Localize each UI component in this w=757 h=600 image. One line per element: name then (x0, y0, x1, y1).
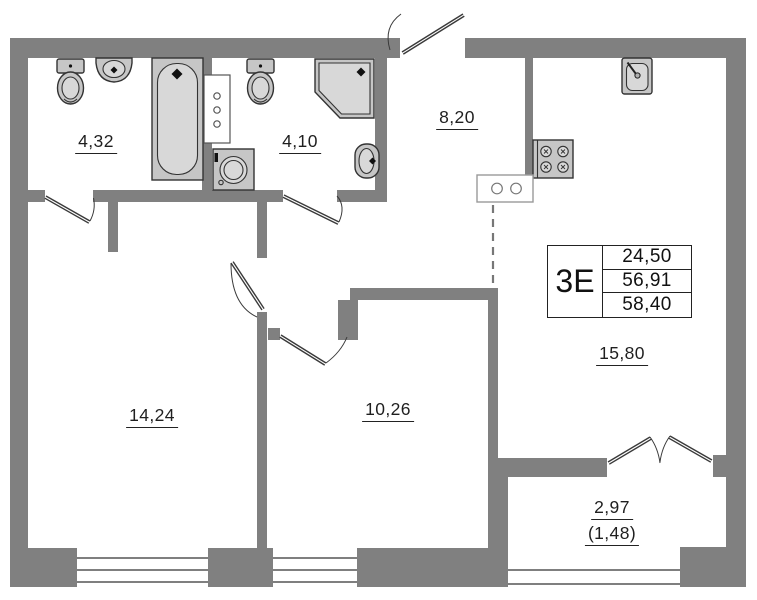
window-room-2 (273, 548, 357, 587)
toilet-icon (247, 59, 274, 104)
bathtub-icon (152, 58, 203, 180)
wall-sink-icon (96, 58, 132, 82)
room-1-door (231, 262, 264, 317)
kitchen-sink-icon (622, 58, 652, 94)
area-label-room-2: 10,26 (362, 399, 414, 422)
area-label-bathroom-1: 4,32 (75, 131, 117, 154)
bathroom-1-door (45, 196, 94, 223)
window-room-1 (77, 548, 208, 587)
total-area-value: 56,91 (603, 270, 691, 294)
area-label-hallway: 8,20 (436, 107, 478, 130)
ventilation-shaft (204, 75, 230, 143)
kitchen-counter (477, 175, 533, 202)
area-label-kitchen-living: 15,80 (596, 343, 648, 366)
toilet-icon (57, 59, 84, 104)
floor-plan: 4,32 4,10 8,20 14,24 10,26 15,80 2,97 (1… (0, 0, 757, 600)
bathroom-2-door (283, 195, 342, 224)
area-label-balcony: 2,97 (591, 497, 633, 520)
apartment-info-table: 3Е 24,50 56,91 58,40 (547, 245, 692, 318)
stove-icon (533, 140, 573, 178)
area-label-balcony-coefficient: (1,48) (585, 523, 639, 546)
living-area-value: 24,50 (603, 246, 691, 270)
total-area-with-balcony-value: 58,40 (603, 293, 691, 317)
area-label-bathroom-2: 4,10 (279, 131, 321, 154)
apartment-type: 3Е (548, 246, 603, 317)
room-2-door (280, 335, 347, 365)
area-label-room-1: 14,24 (126, 405, 178, 428)
oval-sink-icon (355, 144, 379, 178)
corner-shower-icon (315, 59, 374, 118)
balcony-door (608, 436, 712, 464)
balcony-glazing (508, 570, 680, 584)
washing-machine-icon (213, 149, 254, 190)
